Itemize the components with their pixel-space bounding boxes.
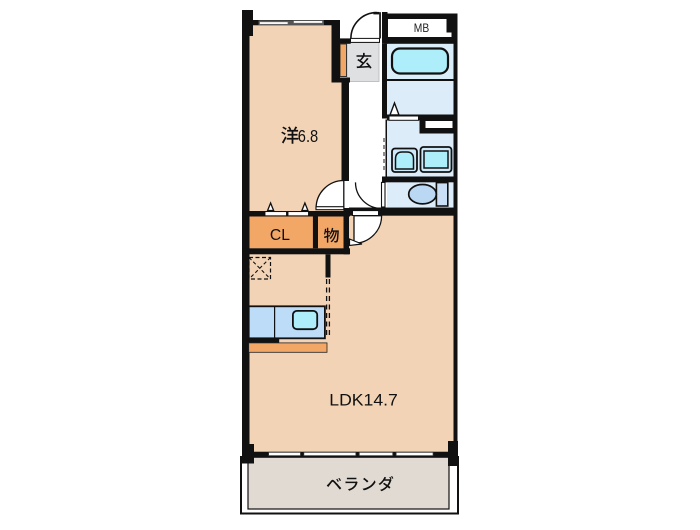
svg-text:CL: CL (270, 227, 290, 244)
svg-text:LDK14.7: LDK14.7 (329, 392, 398, 410)
svg-text:MB: MB (414, 22, 430, 35)
svg-text:6.8: 6.8 (298, 126, 318, 146)
